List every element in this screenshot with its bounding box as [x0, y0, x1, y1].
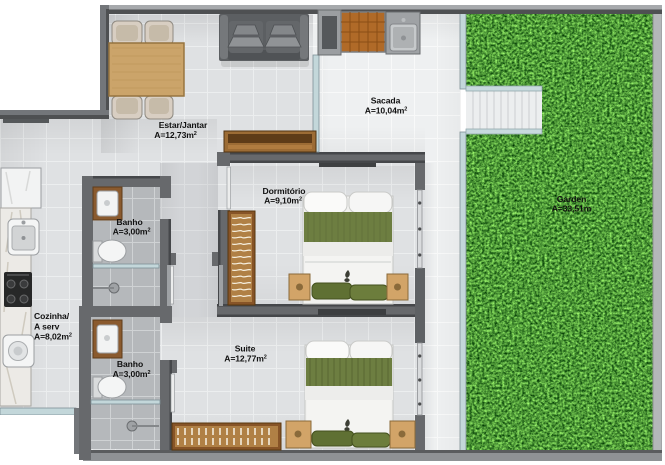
- svg-text:A=8,02m2: A=8,02m2: [34, 332, 72, 342]
- svg-text:A=12,73m2: A=12,73m2: [154, 130, 197, 140]
- svg-text:Suite: Suite: [235, 344, 256, 354]
- svg-text:Banho: Banho: [116, 217, 142, 227]
- svg-text:Banho: Banho: [117, 359, 143, 369]
- svg-text:A=9,10m2: A=9,10m2: [264, 196, 302, 206]
- svg-text:A serv: A serv: [34, 322, 60, 332]
- svg-text:A=3,00m2: A=3,00m2: [113, 227, 151, 237]
- svg-text:Dormitório: Dormitório: [263, 186, 306, 196]
- svg-text:Cozinha/: Cozinha/: [34, 311, 70, 321]
- svg-text:Sacada: Sacada: [371, 96, 401, 106]
- svg-text:A=33,51m: A=33,51m: [552, 204, 592, 214]
- svg-text:A=3,00m2: A=3,00m2: [113, 369, 151, 379]
- svg-text:A=12,77m2: A=12,77m2: [224, 354, 267, 364]
- svg-text:A=10,04m2: A=10,04m2: [365, 106, 408, 116]
- svg-text:Garden: Garden: [557, 194, 587, 204]
- svg-text:Estar/Jantar: Estar/Jantar: [159, 120, 208, 130]
